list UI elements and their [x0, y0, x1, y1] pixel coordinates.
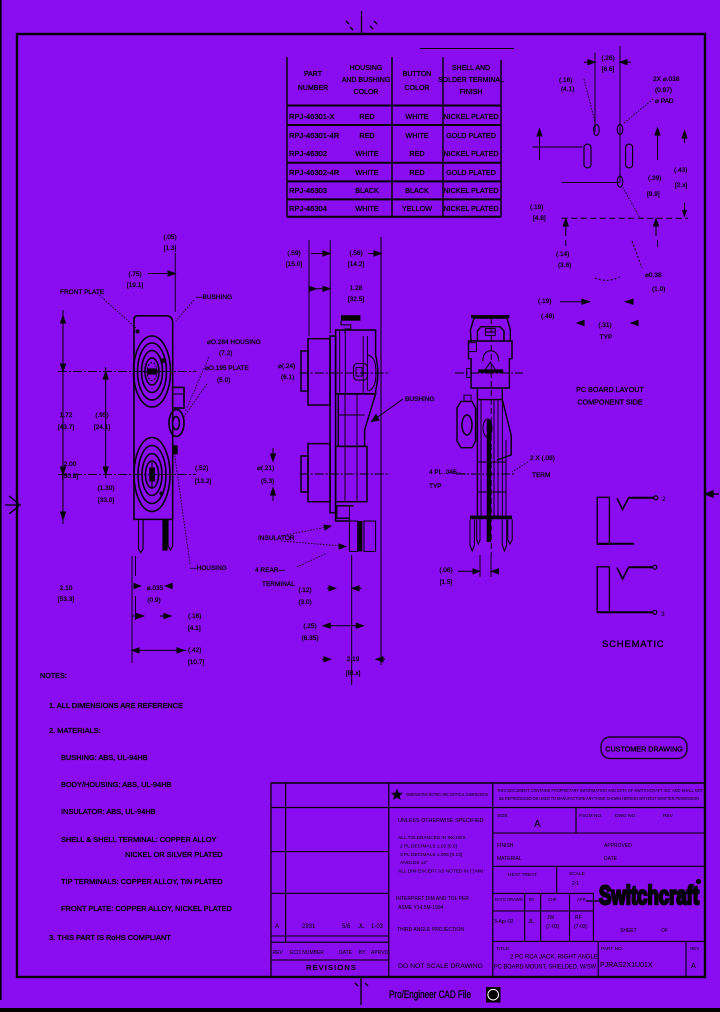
svg-text:[IB.x]: [IB.x]: [346, 670, 361, 677]
svg-text:SHEET: SHEET: [620, 928, 637, 934]
svg-text:HOUSING: HOUSING: [350, 65, 383, 72]
svg-text:1-03: 1-03: [371, 924, 384, 930]
svg-text:INSULATOR: ABS, UL-94HB: INSULATOR: ABS, UL-94HB: [61, 807, 156, 816]
svg-text:RPJ-46302: RPJ-46302: [289, 149, 327, 158]
svg-text:NICKEL PLATED: NICKEL PLATED: [443, 112, 498, 121]
svg-text:INTERPRET DIM AND TOL PER: INTERPRET DIM AND TOL PER: [396, 896, 469, 902]
svg-text:[32.5]: [32.5]: [348, 296, 364, 303]
svg-text:SCHEMATIC: SCHEMATIC: [602, 639, 664, 650]
svg-text:BLACK: BLACK: [355, 186, 379, 195]
svg-text:DATE: DATE: [604, 856, 618, 862]
svg-text:PJRAS2X1U01X: PJRAS2X1U01X: [600, 962, 653, 969]
svg-text:RPJ-46303: RPJ-46303: [289, 186, 327, 195]
svg-text:BUSHING: ABS, UL-94HB: BUSHING: ABS, UL-94HB: [61, 753, 148, 762]
svg-text:REVISIONS: REVISIONS: [306, 963, 357, 972]
svg-text:[19.1]: [19.1]: [127, 282, 143, 289]
svg-text:ALL TOLERANCES IN INCHES: ALL TOLERANCES IN INCHES: [398, 835, 466, 841]
svg-text:BUSHING: BUSHING: [405, 396, 435, 403]
svg-text:JL: JL: [528, 919, 534, 925]
svg-text:(0.97): (0.97): [655, 87, 672, 94]
svg-text:[1.5]: [1.5]: [440, 579, 453, 586]
svg-text:2.19: 2.19: [347, 656, 360, 663]
svg-text:FINISH: FINISH: [497, 843, 514, 849]
svg-text:(.14): (.14): [556, 251, 569, 258]
svg-text:1.28: 1.28: [350, 285, 363, 292]
svg-text:CUSTOMER DRAWING: CUSTOMER DRAWING: [605, 745, 683, 754]
svg-text:SHELL & SHELL TERMINAL: COPPER: SHELL & SHELL TERMINAL: COPPER ALLOY: [61, 835, 216, 844]
svg-text:RPJ-46301-X: RPJ-46301-X: [289, 112, 335, 121]
svg-text:3-Apr-02: 3-Apr-02: [494, 919, 514, 925]
svg-text:4 PL .045: 4 PL .045: [429, 469, 457, 476]
svg-text:⌀O.284 HOUSING: ⌀O.284 HOUSING: [207, 339, 261, 346]
svg-text:BODY/HOUSING: ABS, UL-94HB: BODY/HOUSING: ABS, UL-94HB: [61, 780, 172, 789]
svg-text:NICKEL PLATED: NICKEL PLATED: [443, 149, 498, 158]
svg-text:ECO NUMBER: ECO NUMBER: [290, 950, 324, 956]
svg-text:TYP: TYP: [600, 334, 613, 341]
svg-text:TERM: TERM: [532, 472, 550, 479]
svg-text:TERMINAL: TERMINAL: [262, 581, 295, 588]
svg-text:[53.3]: [53.3]: [58, 596, 74, 603]
svg-text:CHK: CHK: [548, 897, 557, 902]
svg-text:(4.1): (4.1): [561, 86, 574, 93]
svg-text:[9.9]: [9.9]: [647, 191, 660, 198]
svg-text:SIZE: SIZE: [497, 813, 508, 819]
svg-text:NICKEL PLATED: NICKEL PLATED: [443, 186, 498, 195]
svg-text:TIP TERMINALS: COPPER ALLOY, T: TIP TERMINALS: COPPER ALLOY, TIN PLATED: [61, 877, 223, 886]
svg-text:(.25): (.25): [303, 623, 316, 630]
svg-text:(0.9): (0.9): [147, 597, 160, 604]
svg-text:A: A: [534, 819, 541, 830]
svg-text:(3.6): (3.6): [558, 262, 571, 269]
svg-text:PART: PART: [304, 71, 323, 78]
svg-text:RPJ-46302-4R: RPJ-46302-4R: [289, 168, 340, 177]
svg-text:[4.8]: [4.8]: [533, 215, 546, 222]
svg-text:(6.1): (6.1): [281, 374, 294, 381]
svg-text:RED: RED: [359, 112, 374, 121]
svg-text:3. THIS PART IS RoHS COMPLIA: 3. THIS PART IS RoHS COMPLIANT: [49, 933, 171, 942]
svg-text:(.42): (.42): [188, 647, 201, 654]
svg-text:⌀(.24): ⌀(.24): [278, 363, 295, 370]
svg-text:AND BUSHING: AND BUSHING: [342, 77, 391, 84]
svg-text:WHITE: WHITE: [405, 131, 428, 140]
svg-text:3 PL DECIMALS ±.005 [0.13]: 3 PL DECIMALS ±.005 [0.13]: [400, 852, 462, 858]
svg-text:ANGLES ±2°: ANGLES ±2°: [400, 860, 428, 866]
svg-text:[1.3]: [1.3]: [164, 245, 177, 252]
svg-text:WHITE: WHITE: [355, 149, 378, 158]
svg-text:(.31): (.31): [598, 322, 611, 329]
svg-text:APR: APR: [577, 897, 586, 902]
svg-text:2.00: 2.00: [64, 461, 77, 468]
svg-text:DIMENSIONS NOTED ARE CRITICAL: DIMENSIONS NOTED ARE CRITICAL DIMENSIONS: [406, 792, 488, 798]
svg-text:(.06): (.06): [439, 567, 452, 574]
svg-text:WHITE: WHITE: [355, 204, 378, 213]
svg-text:(1.30): (1.30): [98, 485, 115, 492]
svg-text:BUTTON: BUTTON: [403, 71, 432, 78]
svg-text:(6.35): (6.35): [302, 635, 319, 642]
svg-text:NICKEL OR SILVER PLATED: NICKEL OR SILVER PLATED: [125, 850, 223, 859]
svg-text:UNLESS OTHERWISE SPECIFIED: UNLESS OTHERWISE SPECIFIED: [398, 818, 484, 824]
svg-text:JW: JW: [547, 915, 555, 921]
svg-text:RF: RF: [575, 915, 582, 921]
svg-text:BLACK: BLACK: [405, 186, 429, 195]
svg-text:PC BOARD LAYOUT: PC BOARD LAYOUT: [576, 385, 644, 394]
svg-text:WHITE: WHITE: [405, 112, 428, 121]
svg-text:[13.2]: [13.2]: [195, 478, 211, 485]
svg-text:DATE DRAWN: DATE DRAWN: [495, 897, 523, 902]
svg-text:COLOR: COLOR: [354, 89, 379, 96]
svg-text:[4.1]: [4.1]: [188, 625, 201, 632]
svg-text:[33.0]: [33.0]: [98, 497, 114, 504]
svg-text:COMPONENT SIDE: COMPONENT SIDE: [577, 398, 643, 407]
svg-text:(.39): (.39): [648, 175, 661, 182]
svg-text:—HOUSING: —HOUSING: [190, 565, 227, 572]
svg-text:INSULATOR: INSULATOR: [258, 535, 295, 542]
svg-text:⌀.035: ⌀.035: [147, 585, 164, 592]
svg-text:BY: BY: [529, 897, 535, 902]
svg-text:(.26): (.26): [601, 55, 614, 62]
svg-text:Pro/Engineer CAD File: Pro/Engineer CAD File: [389, 989, 471, 1001]
svg-text:NUMBER: NUMBER: [298, 85, 328, 92]
svg-text:[10.7]: [10.7]: [188, 659, 204, 666]
svg-text:RED: RED: [409, 168, 424, 177]
svg-text:2 X (.08): 2 X (.08): [530, 455, 555, 462]
svg-text:SOLDER TERMINAL: SOLDER TERMINAL: [438, 77, 504, 84]
svg-text:(.43): (.43): [674, 167, 687, 174]
svg-text:2: 2: [662, 496, 666, 503]
svg-text:JL: JL: [358, 924, 365, 930]
svg-text:ALL DIM EXCEPT AS NOTED IN [ ]: ALL DIM EXCEPT AS NOTED IN [ ] MM: [398, 869, 483, 875]
svg-text:(.19): (.19): [538, 298, 551, 305]
svg-text:1.72: 1.72: [60, 412, 73, 419]
svg-text:PC BOARD MOUNT, SHIELDED, W/SW: PC BOARD MOUNT, SHIELDED, W/SW: [494, 965, 596, 971]
svg-text:THIRD ANGLE PROJECTION: THIRD ANGLE PROJECTION: [397, 927, 464, 933]
svg-text:SCALE: SCALE: [569, 871, 585, 877]
svg-text:6: 6: [491, 991, 496, 1000]
svg-text:RED: RED: [409, 149, 424, 158]
svg-text:BY: BY: [359, 950, 366, 956]
svg-text:RPJ-46301-4R: RPJ-46301-4R: [289, 131, 340, 140]
svg-text:REV: REV: [690, 946, 699, 951]
svg-text:⌀ PAD: ⌀ PAD: [655, 98, 674, 105]
svg-text:2931: 2931: [302, 924, 316, 930]
svg-text:ASME Y14.5M-1994: ASME Y14.5M-1994: [398, 905, 444, 911]
svg-text:TITLE: TITLE: [496, 946, 509, 952]
svg-text:(.48): (.48): [541, 313, 554, 320]
svg-text:(.56): (.56): [349, 250, 362, 257]
svg-text:PART NO.: PART NO.: [601, 946, 623, 952]
svg-text:(7.2): (7.2): [219, 350, 232, 357]
svg-text:⌀0.38: ⌀0.38: [645, 272, 662, 279]
svg-text:HEAT TREAT: HEAT TREAT: [508, 872, 537, 878]
svg-text:[24.1]: [24.1]: [94, 424, 110, 431]
svg-text:2:1: 2:1: [572, 881, 579, 887]
svg-text:(.95): (.95): [95, 412, 108, 419]
svg-text:(5.0): (5.0): [217, 377, 230, 384]
svg-text:4 REAR—: 4 REAR—: [255, 567, 285, 574]
svg-text:2. MATERIALS:: 2. MATERIALS:: [49, 726, 101, 735]
svg-text:[15.0]: [15.0]: [286, 261, 302, 268]
svg-text:[2.x]: [2.x]: [675, 182, 687, 189]
svg-text:A: A: [275, 924, 279, 930]
svg-text:2 PC RCA JACK, RIGHT ANGLE: 2 PC RCA JACK, RIGHT ANGLE: [510, 955, 598, 961]
svg-text:(.16): (.16): [188, 613, 201, 620]
svg-text:NOTES:: NOTES:: [40, 671, 67, 680]
svg-text:FSCM NO.: FSCM NO.: [579, 813, 602, 819]
svg-text:(.52): (.52): [195, 465, 208, 472]
svg-text:WHITE: WHITE: [355, 168, 378, 177]
svg-text:THIS DOCUMENT CONTAINS PROPRIE: THIS DOCUMENT CONTAINS PROPRIETARY INFOR…: [497, 788, 703, 793]
svg-text:(.59): (.59): [287, 250, 300, 257]
svg-text:(7-03): (7-03): [574, 924, 588, 930]
svg-text:(1.0): (1.0): [652, 286, 665, 293]
svg-text:MATERIAL: MATERIAL: [497, 856, 522, 862]
svg-text:(7-03): (7-03): [546, 924, 560, 930]
svg-text:2.10: 2.10: [60, 585, 73, 592]
svg-text:(.19): (.19): [530, 204, 543, 211]
svg-text:NICKEL PLATED: NICKEL PLATED: [443, 204, 498, 213]
svg-text:COLOR: COLOR: [405, 85, 430, 92]
svg-text:(.75): (.75): [128, 271, 141, 278]
svg-text:[6.6]: [6.6]: [602, 66, 615, 73]
svg-text:2X ⌀.038: 2X ⌀.038: [653, 76, 680, 83]
svg-text:DWG NO.: DWG NO.: [615, 813, 637, 819]
svg-text:REV: REV: [273, 950, 284, 956]
svg-text:⌀O.195 PLATE: ⌀O.195 PLATE: [205, 365, 249, 372]
svg-text:[50.8]: [50.8]: [62, 473, 78, 480]
svg-text:BE REPRODUCED OR USED TO MANUF: BE REPRODUCED OR USED TO MANUFACTURE ANY…: [499, 796, 699, 801]
svg-text:(.12): (.12): [298, 587, 311, 594]
svg-text:(3.0): (3.0): [298, 599, 311, 606]
svg-text:DATE: DATE: [339, 950, 353, 956]
svg-text:1. ALL DIMENSIONS ARE REFERE: 1. ALL DIMENSIONS ARE REFERENCE: [49, 701, 183, 710]
svg-text:OF: OF: [661, 928, 668, 934]
svg-text:[14.2]: [14.2]: [348, 261, 364, 268]
svg-text:FINISH: FINISH: [460, 89, 483, 96]
svg-text:⌀(.21): ⌀(.21): [257, 465, 274, 472]
svg-text:RED: RED: [359, 131, 374, 140]
svg-text:[43.7]: [43.7]: [58, 424, 74, 431]
svg-text:FRONT PLATE: COPPER ALLOY, NIC: FRONT PLATE: COPPER ALLOY, NICKEL PLATED: [61, 904, 232, 913]
svg-text:APRVD: APRVD: [371, 950, 389, 956]
svg-text:GOLD PLATED: GOLD PLATED: [446, 168, 496, 177]
svg-text:3: 3: [661, 611, 665, 618]
svg-text:YELLOW: YELLOW: [402, 204, 432, 213]
svg-text:TYP: TYP: [429, 483, 442, 490]
svg-text:—BUSHING: —BUSHING: [196, 294, 232, 301]
svg-text:A: A: [691, 963, 696, 970]
svg-text:2 PL DECIMALS ±.02 [0.5]: 2 PL DECIMALS ±.02 [0.5]: [400, 843, 457, 849]
svg-text:DO NOT SCALE DRAWING: DO NOT SCALE DRAWING: [398, 963, 483, 970]
svg-text:GOLD PLATED: GOLD PLATED: [446, 131, 496, 140]
svg-text:(5.3): (5.3): [261, 478, 274, 485]
svg-text:APPROVED: APPROVED: [604, 843, 632, 849]
svg-text:(.05): (.05): [163, 234, 176, 241]
svg-text:Switchcraft: Switchcraft: [599, 880, 699, 910]
svg-text:SHELL AND: SHELL AND: [452, 65, 490, 72]
svg-text:(.16): (.16): [559, 77, 572, 84]
svg-text:RPJ-46304: RPJ-46304: [289, 204, 327, 213]
svg-text:FRONT PLATE: FRONT PLATE: [60, 289, 105, 296]
svg-text:5/6: 5/6: [342, 924, 351, 930]
svg-text:REV: REV: [663, 813, 674, 819]
